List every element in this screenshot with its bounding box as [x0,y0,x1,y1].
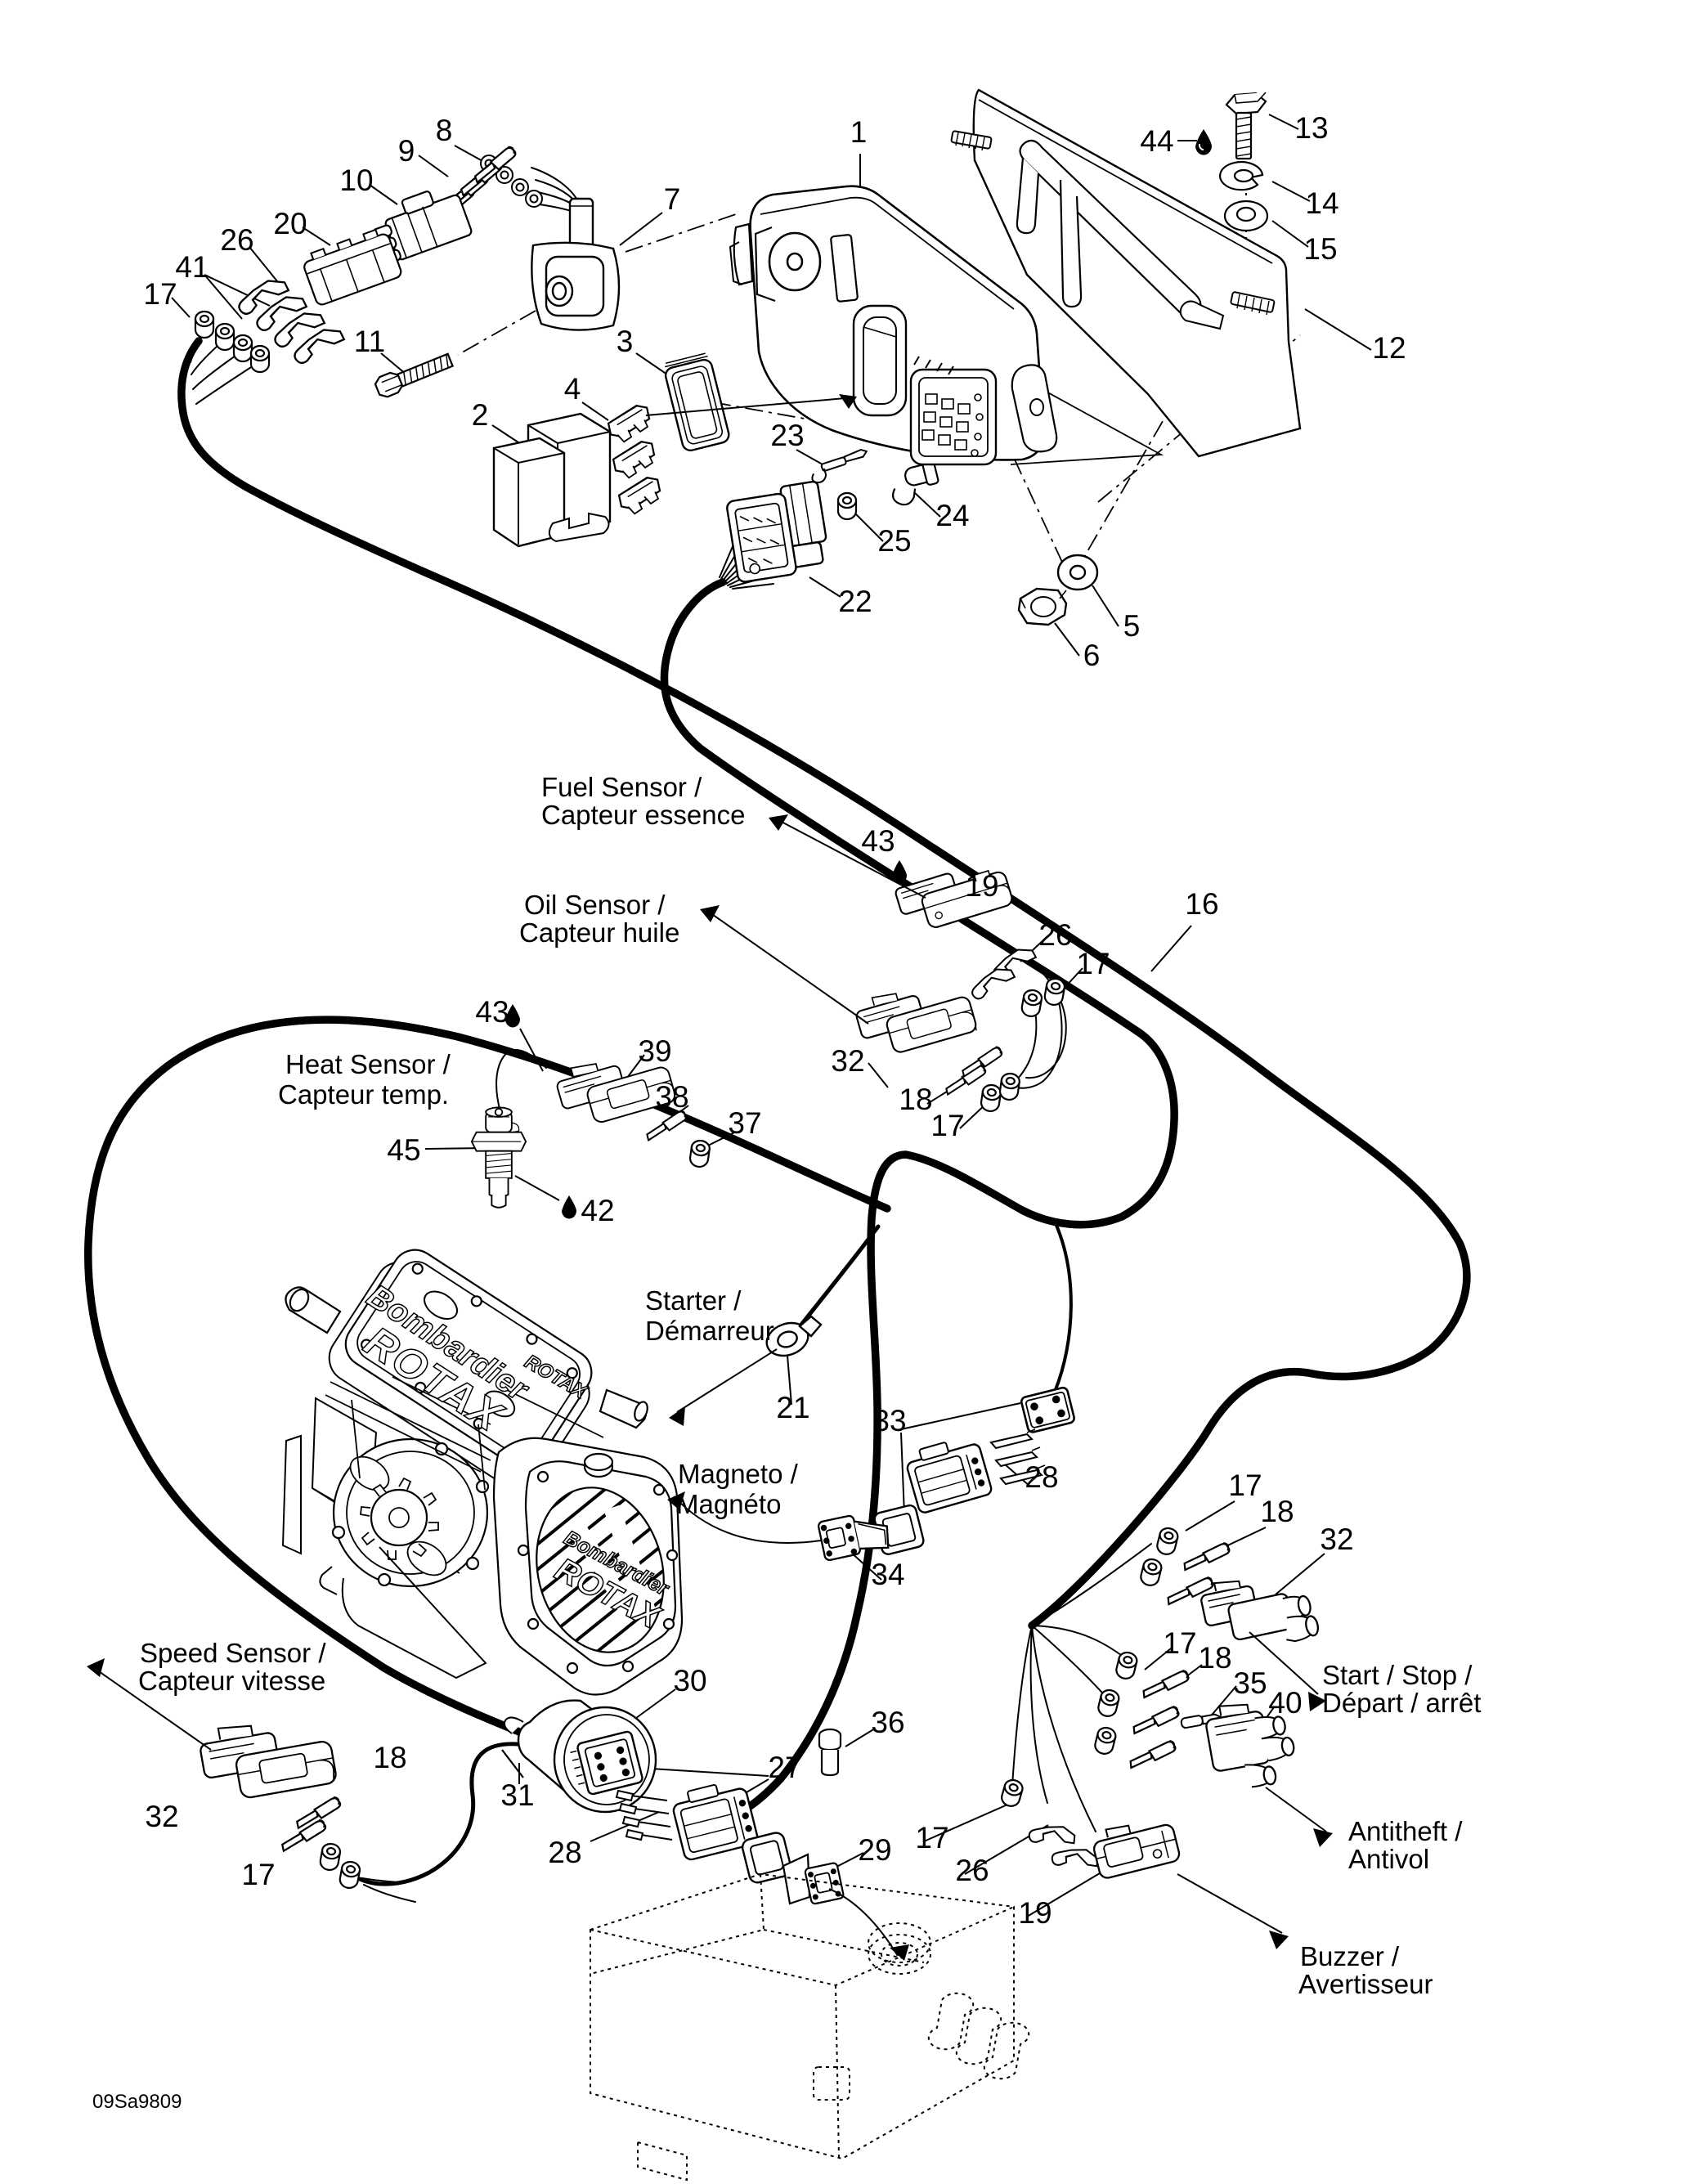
svg-text:Start / Stop /: Start / Stop / [1322,1660,1473,1690]
svg-text:38: 38 [655,1080,688,1114]
svg-text:12: 12 [1372,331,1406,365]
svg-text:1: 1 [850,115,868,149]
svg-text:32: 32 [1320,1523,1353,1556]
svg-text:11: 11 [354,325,385,358]
svg-text:Oil Sensor /: Oil Sensor / [524,890,666,920]
svg-text:Magneto /: Magneto / [678,1459,799,1489]
svg-text:Heat Sensor /: Heat Sensor / [285,1049,451,1079]
svg-text:41: 41 [175,250,209,284]
svg-text:17: 17 [241,1858,275,1891]
svg-text:34: 34 [871,1558,904,1591]
svg-text:42: 42 [581,1194,614,1227]
svg-text:26: 26 [220,223,253,257]
svg-text:37: 37 [728,1106,761,1140]
svg-text:33: 33 [872,1404,906,1437]
svg-text:32: 32 [831,1044,864,1078]
svg-text:36: 36 [871,1706,904,1739]
svg-text:8: 8 [436,114,453,147]
svg-text:Capteur vitesse: Capteur vitesse [138,1666,325,1696]
svg-text:16: 16 [1185,887,1218,921]
svg-text:14: 14 [1305,186,1338,220]
svg-text:45: 45 [387,1133,420,1167]
svg-text:Capteur essence: Capteur essence [541,800,745,830]
svg-text:6: 6 [1083,639,1101,672]
svg-text:Capteur huile: Capteur huile [519,917,679,948]
svg-text:31: 31 [500,1778,534,1812]
svg-text:9: 9 [398,134,415,168]
svg-text:Magnéto: Magnéto [676,1489,781,1519]
svg-text:17: 17 [930,1109,964,1142]
svg-text:25: 25 [877,524,911,558]
svg-text:7: 7 [664,182,681,216]
svg-text:19: 19 [965,869,998,903]
svg-text:Antivol: Antivol [1348,1844,1429,1874]
svg-text:Buzzer /: Buzzer / [1300,1941,1400,1971]
svg-text:17: 17 [143,277,177,311]
svg-text:32: 32 [145,1800,178,1833]
svg-text:18: 18 [1260,1495,1294,1528]
svg-text:20: 20 [273,207,307,240]
svg-text:Antitheft /: Antitheft / [1348,1816,1463,1846]
svg-text:44: 44 [1140,124,1173,158]
svg-text:13: 13 [1294,111,1328,145]
svg-text:17: 17 [1163,1626,1196,1660]
svg-text:28: 28 [1025,1460,1058,1494]
svg-text:Starter /: Starter / [645,1285,742,1316]
svg-text:22: 22 [838,585,872,618]
svg-text:29: 29 [858,1833,891,1867]
svg-text:Départ / arrêt: Départ / arrêt [1322,1688,1481,1718]
svg-text:19: 19 [1018,1896,1052,1930]
svg-text:5: 5 [1123,609,1141,643]
svg-text:Avertisseur: Avertisseur [1298,1969,1433,1999]
svg-text:18: 18 [1198,1641,1231,1675]
svg-text:23: 23 [770,419,804,452]
svg-text:21: 21 [776,1391,809,1424]
svg-text:Démarreur: Démarreur [645,1316,774,1346]
svg-text:15: 15 [1303,232,1337,266]
svg-text:17: 17 [1076,947,1110,980]
svg-text:40: 40 [1268,1686,1302,1720]
svg-text:28: 28 [548,1836,581,1869]
svg-text:Capteur temp.: Capteur temp. [278,1079,449,1110]
svg-text:43: 43 [861,824,895,858]
svg-text:17: 17 [915,1821,948,1854]
svg-text:24: 24 [935,499,969,532]
svg-text:3: 3 [617,325,634,358]
svg-text:4: 4 [564,372,581,406]
svg-text:35: 35 [1233,1666,1267,1700]
svg-text:43: 43 [475,995,509,1029]
svg-text:17: 17 [1228,1469,1262,1502]
svg-text:10: 10 [339,164,373,197]
svg-text:18: 18 [373,1741,406,1774]
svg-text:Fuel Sensor /: Fuel Sensor / [541,772,702,802]
svg-text:2: 2 [472,398,489,432]
svg-text:26: 26 [955,1854,989,1887]
svg-text:27: 27 [768,1751,801,1784]
svg-text:18: 18 [899,1083,932,1116]
svg-text:26: 26 [1038,918,1072,952]
svg-text:39: 39 [638,1034,671,1068]
svg-text:09Sa9809: 09Sa9809 [92,2091,182,2113]
svg-text:Speed Sensor /: Speed Sensor / [140,1638,326,1668]
svg-text:30: 30 [673,1664,706,1697]
